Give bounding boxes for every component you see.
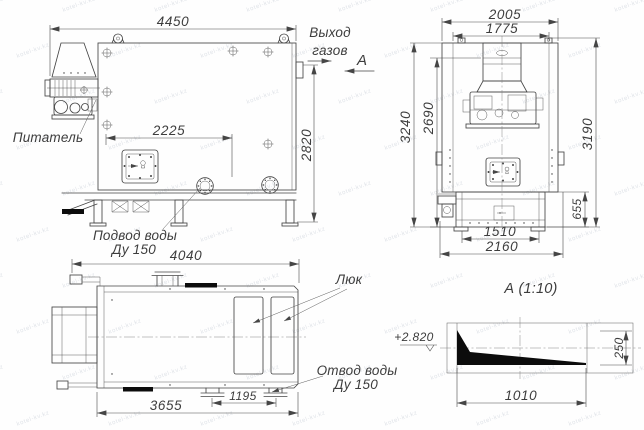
front-view: 2005 1775 3240 2690 3190 655 1510 [398, 7, 600, 258]
label-water-outlet-dn: Ду 150 [332, 377, 378, 392]
hatch-plan-2 [271, 297, 294, 374]
side-view: Питатель [13, 14, 374, 257]
label-water-inlet-dn: Ду 150 [110, 242, 156, 257]
plan-view: 4040 1195 3655 Люк Отвод воды Ду 150 [52, 248, 397, 417]
drawing-canvas: kotel-kv.kzkotel-kv.kzkotel-kv.kzkotel-k… [0, 0, 644, 430]
dim-plan-body-length: 3655 [150, 398, 182, 413]
dim-front-inner-width: 1775 [486, 21, 518, 36]
hatch-door-front [486, 158, 520, 186]
dim-front-base-span: 1510 [484, 224, 516, 239]
dim-detail-length: 1010 [505, 388, 537, 403]
port-mark-icon [102, 46, 274, 150]
dim-front-base-overall: 2160 [485, 239, 518, 254]
dim-front-overall-width: 2005 [488, 7, 521, 22]
label-hatch: Люк [335, 272, 363, 287]
detail-view-a: А (1:10) +2.820 1010 250 [394, 281, 641, 407]
dim-front-base-height: 655 [570, 198, 584, 219]
hatch-plan-1 [234, 297, 263, 374]
dim-plan-support-span: 1195 [229, 389, 256, 403]
side-dimensions: 4450 2225 2820 [50, 14, 318, 222]
gas-outlet-flange [296, 62, 303, 78]
dim-side-overall: 4450 [157, 14, 189, 29]
feeder-front [463, 43, 543, 128]
dim-detail-height: 250 [612, 337, 626, 359]
water-inlet-flange [197, 177, 279, 195]
boiler-body-side [98, 43, 296, 190]
dim-side-hatch-offset: 2225 [152, 123, 185, 138]
elevation-arrow-icon [400, 345, 437, 351]
base-frame-side [62, 193, 298, 226]
detail-title: А (1:10) [503, 281, 557, 297]
water-outlet-leader [272, 376, 323, 392]
dim-side-height: 2820 [299, 129, 314, 162]
grate-wedge-profile [457, 330, 586, 365]
label-gas-outlet-2: газов [312, 43, 347, 58]
dim-front-height-total: 3240 [398, 111, 413, 143]
hatch-door-side [122, 150, 158, 183]
dim-front-height-body: 2690 [421, 102, 436, 135]
dim-front-height-right: 3190 [580, 118, 595, 150]
label-water-outlet: Отвод воды [317, 363, 398, 378]
hatch-leader-1 [253, 288, 340, 323]
label-gas-outlet-1: Выход [309, 25, 351, 40]
elevation-mark: +2.820 [394, 330, 433, 344]
plan-dimensions: 4040 1195 3655 [72, 248, 299, 417]
label-section-letter: А [356, 52, 367, 69]
plan-fittings [57, 272, 287, 397]
feeder-plan [52, 307, 97, 363]
feeder-assembly [45, 43, 100, 119]
label-feeder: Питатель [13, 130, 84, 145]
hatch-leader-2 [284, 289, 347, 321]
label-water-inlet: Подвод воды [93, 228, 177, 243]
lifting-lug-icon [112, 34, 290, 43]
dim-plan-overall: 4040 [170, 248, 202, 263]
boiler-drawing: Питатель [0, 0, 644, 430]
front-dimensions: 2005 1775 3240 2690 3190 655 1510 [398, 7, 600, 258]
boiler-body-front [442, 43, 558, 192]
